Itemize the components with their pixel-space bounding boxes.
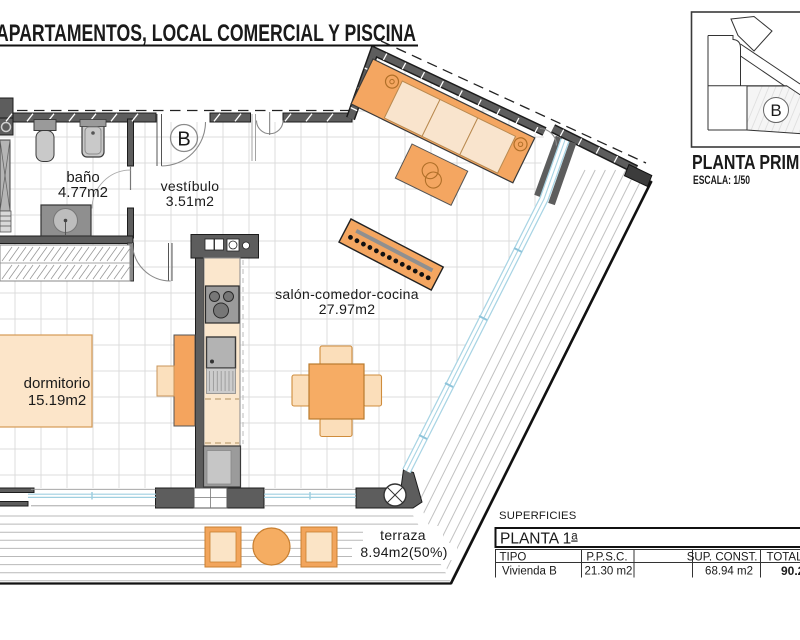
svg-text:B: B xyxy=(770,101,781,120)
svg-text:APARTAMENTOS, LOCAL COMERCIAL: APARTAMENTOS, LOCAL COMERCIAL Y PISCINA xyxy=(0,20,416,47)
svg-text:15.19m2: 15.19m2 xyxy=(28,392,86,409)
svg-text:27.97m2: 27.97m2 xyxy=(319,301,376,317)
svg-text:SUP. CONST.: SUP. CONST. xyxy=(687,552,758,564)
svg-text:4.77m2: 4.77m2 xyxy=(58,184,108,201)
svg-text:SUPERFICIES: SUPERFICIES xyxy=(499,510,577,522)
svg-text:PLANTA PRIMERA: PLANTA PRIMERA xyxy=(692,152,800,174)
svg-text:3.51m2: 3.51m2 xyxy=(166,193,215,209)
svg-text:P.P.S.C.: P.P.S.C. xyxy=(586,552,627,564)
svg-text:90.25: 90.25 xyxy=(781,564,800,578)
svg-text:PLANTA 1a: PLANTA 1a xyxy=(500,531,578,548)
svg-text:dormitorio: dormitorio xyxy=(24,375,91,392)
svg-text:21.30 m2: 21.30 m2 xyxy=(585,566,633,578)
svg-text:terraza: terraza xyxy=(380,527,426,543)
svg-text:8.94m2(50%): 8.94m2(50%) xyxy=(360,544,447,560)
svg-text:ESCALA: 1/50: ESCALA: 1/50 xyxy=(693,175,750,187)
svg-text:salón-comedor-cocina: salón-comedor-cocina xyxy=(275,286,419,302)
svg-text:vestíbulo: vestíbulo xyxy=(161,178,220,194)
svg-text:Vivienda B: Vivienda B xyxy=(502,566,557,578)
svg-text:B: B xyxy=(177,129,190,151)
svg-text:TOTAL CONST.: TOTAL CONST. xyxy=(767,552,800,564)
svg-text:68.94 m2: 68.94 m2 xyxy=(705,566,753,578)
svg-text:TIPO: TIPO xyxy=(500,552,527,564)
